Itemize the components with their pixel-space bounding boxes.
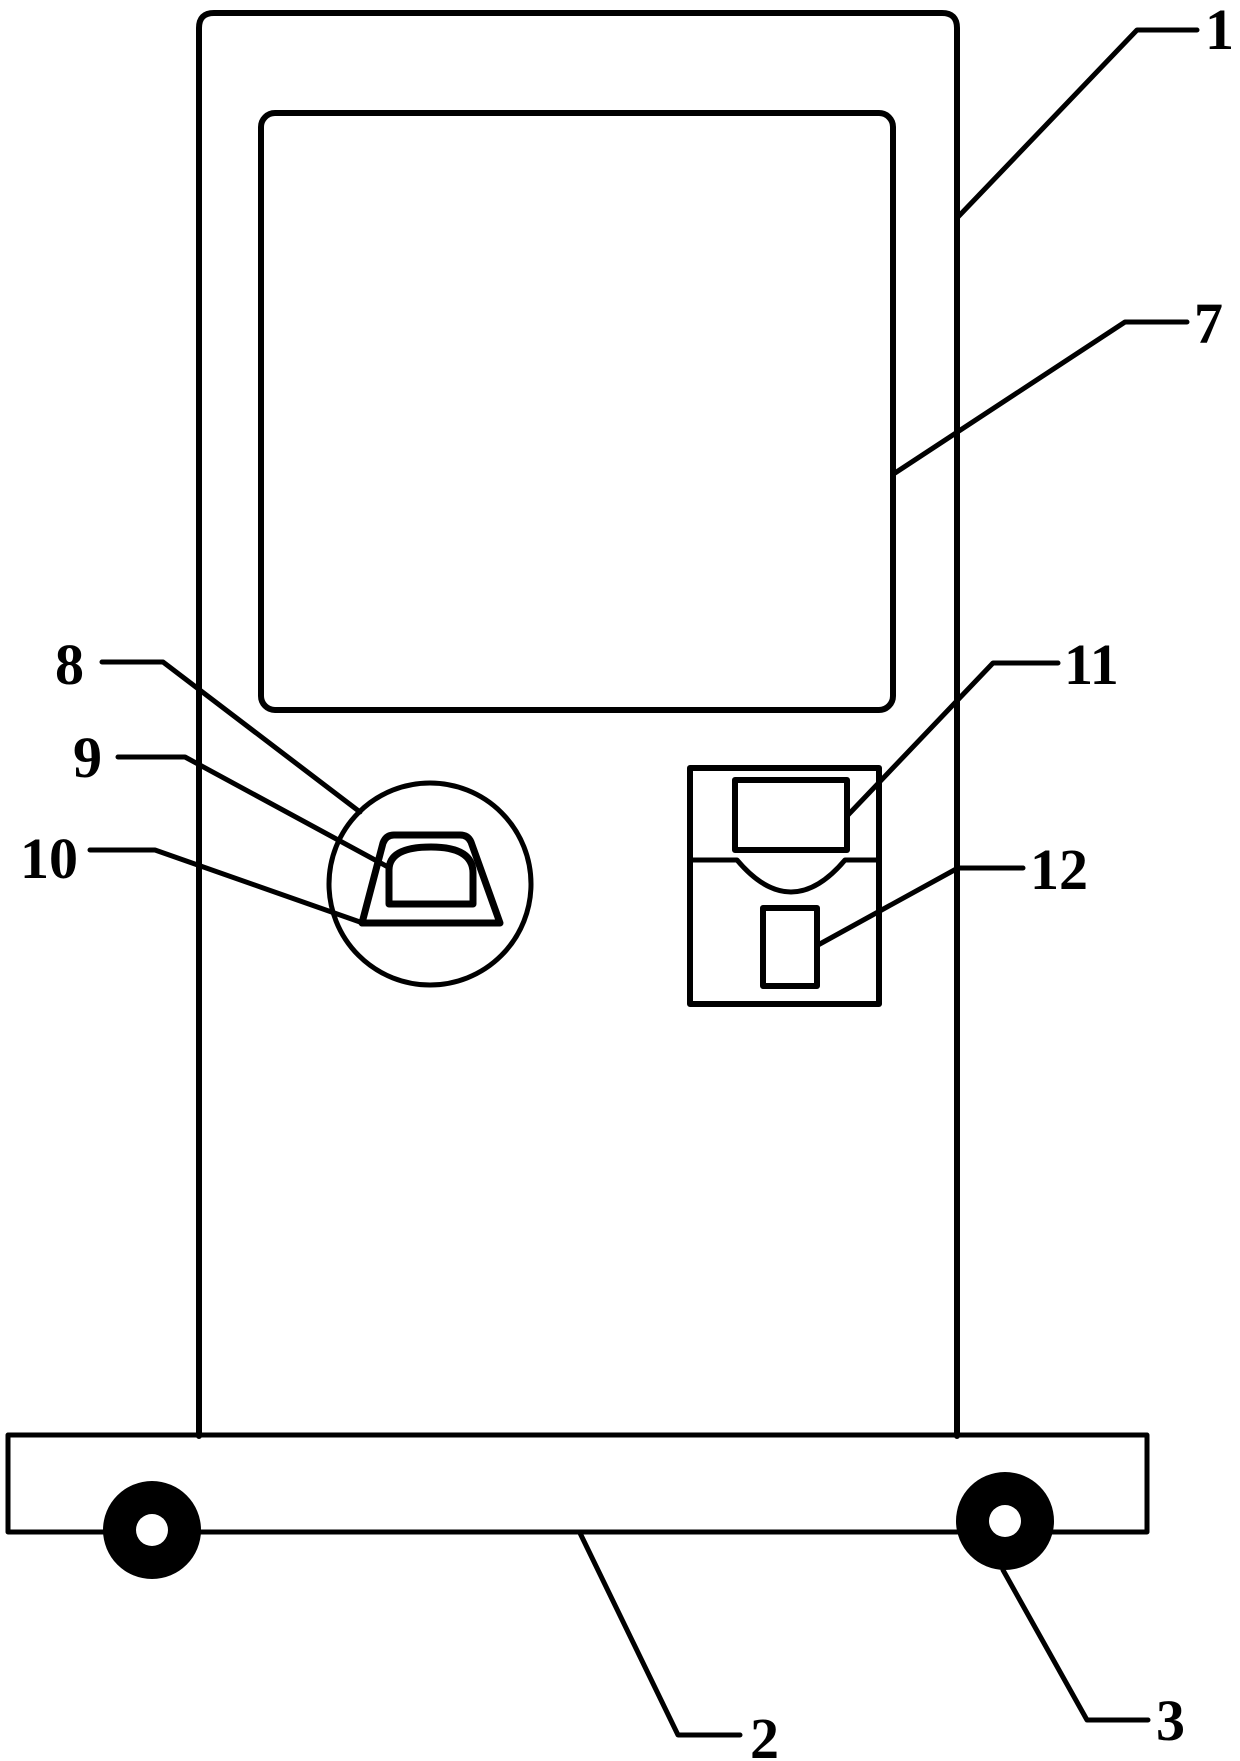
callout-line-10 — [90, 850, 360, 922]
display-screen — [261, 113, 893, 710]
diagram-canvas: 1 7 8 9 10 11 12 2 3 — [0, 0, 1240, 1761]
callout-label-11: 11 — [1064, 632, 1119, 697]
callout-line-12 — [818, 868, 1023, 945]
callout-line-1 — [957, 30, 1197, 218]
callout-line-8 — [102, 662, 360, 812]
callout-line-2 — [580, 1533, 740, 1735]
callout-label-9: 9 — [73, 725, 102, 790]
card-slot — [735, 780, 847, 850]
scanner-dome — [389, 847, 473, 904]
patent-figure: 1 7 8 9 10 11 12 2 3 — [0, 0, 1240, 1761]
cabinet-outline — [199, 13, 957, 1436]
reader-panel — [690, 768, 879, 1004]
callout-label-2: 2 — [750, 1706, 779, 1761]
callout-label-1: 1 — [1205, 0, 1234, 62]
left-wheel-hub — [136, 1514, 168, 1546]
callout-label-3: 3 — [1156, 1688, 1185, 1753]
callout-line-7 — [895, 322, 1187, 473]
callout-label-8: 8 — [55, 632, 84, 697]
right-wheel-hub — [989, 1505, 1021, 1537]
callout-label-7: 7 — [1194, 291, 1223, 356]
receipt-slot — [763, 908, 817, 986]
callout-label-12: 12 — [1030, 837, 1088, 902]
callout-line-3 — [1003, 1570, 1148, 1720]
callout-label-10: 10 — [20, 826, 78, 891]
panel-divider-arc — [690, 860, 879, 892]
